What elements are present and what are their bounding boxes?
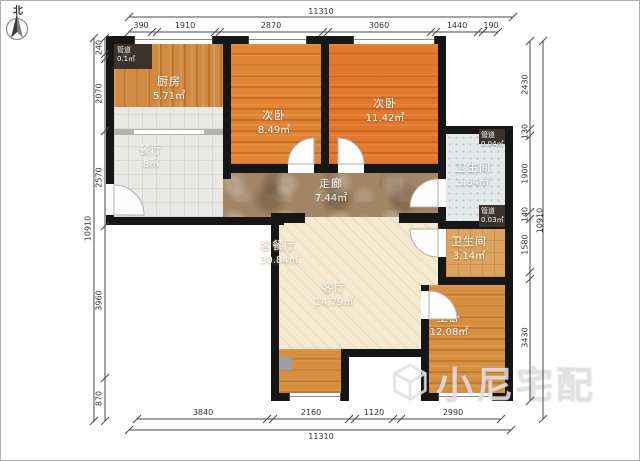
wall-segment bbox=[321, 43, 329, 164]
sliding-door bbox=[114, 129, 223, 135]
dim-bottom-seg: 1120 bbox=[357, 408, 391, 417]
dim-bottom-seg: 2160 bbox=[294, 408, 328, 417]
north-label: 北 bbox=[10, 2, 26, 17]
wall-segment bbox=[364, 164, 438, 173]
floor-kitchen-tile bbox=[114, 107, 223, 129]
door-gap-bedroom-b bbox=[338, 164, 364, 173]
dim-top-seg: 390 bbox=[127, 21, 155, 30]
door-gap-master bbox=[421, 291, 429, 319]
dim-right-seg: 3430 bbox=[521, 323, 530, 353]
wall-segment bbox=[271, 217, 279, 401]
dim-left-seg: 3960 bbox=[95, 286, 104, 316]
floor-dining bbox=[114, 135, 223, 217]
wall-segment bbox=[231, 164, 288, 173]
wall-segment bbox=[505, 126, 513, 401]
wall-segment bbox=[438, 134, 446, 179]
dim-top-seg: 1910 bbox=[168, 21, 202, 30]
window bbox=[248, 36, 307, 44]
sliding-door-leaf bbox=[134, 130, 204, 134]
floor-balcony bbox=[279, 349, 341, 393]
wall-segment bbox=[314, 164, 338, 173]
floor-living bbox=[279, 217, 421, 349]
wall-segment bbox=[341, 353, 349, 401]
dim-bottom-seg: 3840 bbox=[186, 408, 220, 417]
dim-right-seg: 1900 bbox=[521, 159, 530, 189]
floor-bath-b bbox=[446, 229, 505, 277]
window bbox=[438, 393, 493, 401]
dim-top-seg: 2870 bbox=[254, 21, 288, 30]
dim-right-seg: 140 bbox=[521, 200, 530, 230]
dim-left-total: 10910 bbox=[84, 214, 93, 244]
dim-left-seg: 240 bbox=[95, 33, 104, 63]
floorplan-canvas: 厨房 5.71㎡ 次卧 8.49㎡ 次卧 11.42㎡ 餐厅 8㎡ 走廊 7.4… bbox=[0, 0, 640, 461]
wall-segment bbox=[399, 213, 438, 223]
window bbox=[289, 393, 341, 401]
dim-bottom-total: 11310 bbox=[301, 432, 341, 441]
floor-master bbox=[429, 285, 505, 393]
window bbox=[353, 36, 435, 44]
dim-right-seg: 1580 bbox=[521, 230, 530, 260]
dim-bottom-seg: 2990 bbox=[436, 408, 470, 417]
floor-bedroom-a bbox=[231, 44, 321, 164]
floor-hall bbox=[421, 223, 438, 285]
floor-bedroom-b bbox=[329, 44, 438, 164]
dim-right-seg: 130 bbox=[521, 117, 530, 147]
dim-top-seg: 190 bbox=[478, 21, 504, 30]
wall-segment bbox=[223, 36, 231, 179]
dim-top-seg: 1440 bbox=[440, 21, 474, 30]
wall-segment bbox=[106, 217, 284, 225]
dim-top-total: 11310 bbox=[301, 7, 341, 16]
door-gap-bath-b bbox=[438, 229, 446, 257]
wall-segment bbox=[341, 349, 429, 357]
dim-left-seg: 2070 bbox=[95, 79, 104, 109]
dim-left-seg: 870 bbox=[95, 384, 104, 414]
dim-left-seg: 2570 bbox=[95, 163, 104, 193]
wall-segment bbox=[271, 213, 305, 223]
floor-corridor bbox=[223, 173, 438, 217]
door-gap-dining bbox=[106, 184, 114, 215]
window bbox=[134, 36, 213, 44]
dim-right-seg: 2430 bbox=[521, 70, 530, 100]
door-gap-bath-a bbox=[438, 179, 446, 207]
column-block bbox=[279, 357, 292, 370]
wall-segment bbox=[438, 277, 505, 285]
dim-top-seg: 3060 bbox=[362, 21, 396, 30]
door-gap-bedroom-a bbox=[288, 164, 314, 173]
wall-segment bbox=[438, 36, 446, 134]
duct-kitchen-patch bbox=[114, 44, 152, 69]
duct-a-patch bbox=[479, 129, 505, 144]
duct-b-patch bbox=[479, 205, 505, 227]
dim-right-total: 10910 bbox=[536, 206, 545, 236]
